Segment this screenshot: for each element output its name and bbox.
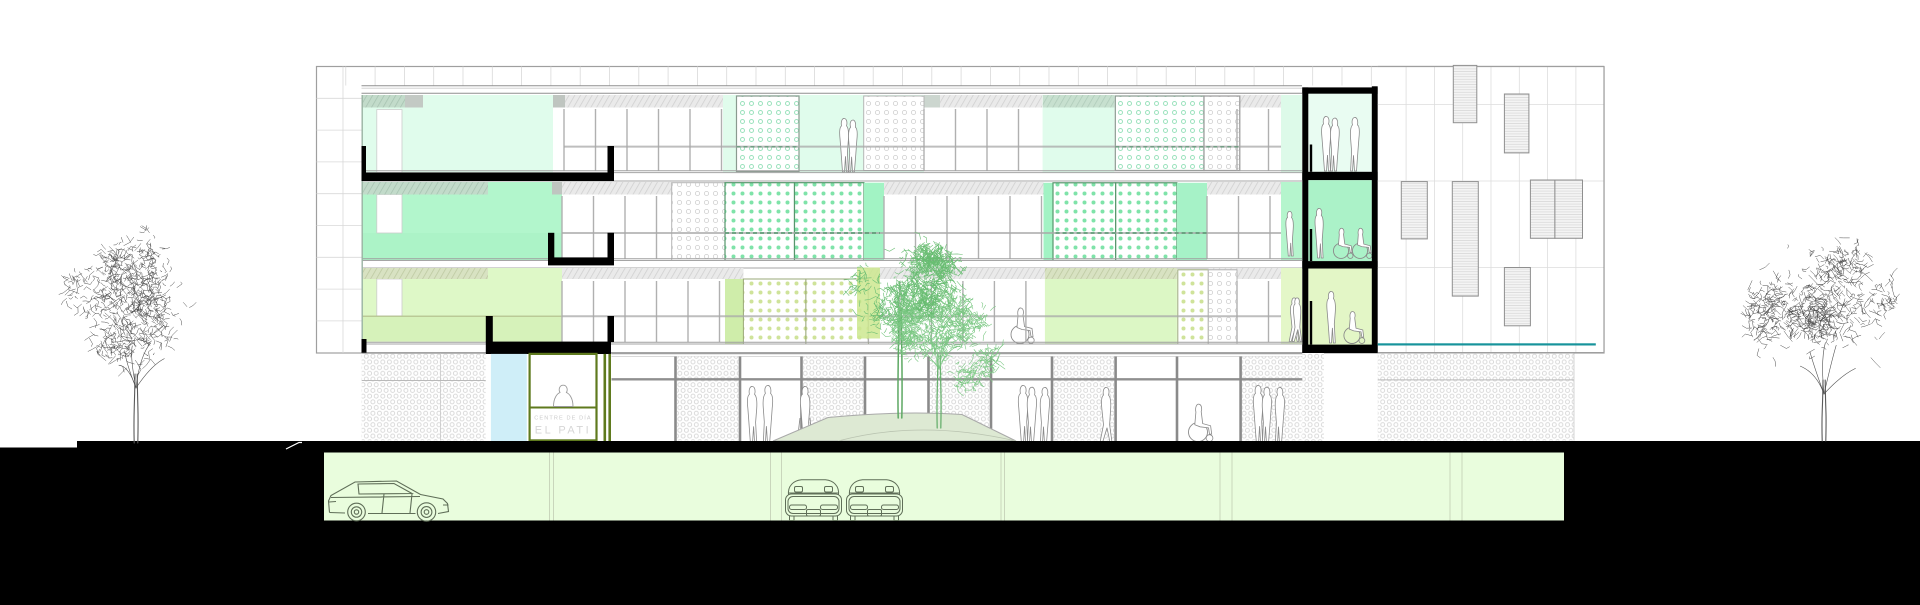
svg-text:EL PATI: EL PATI: [535, 425, 591, 437]
svg-text:CENTRE DE DÍA: CENTRE DE DÍA: [534, 415, 592, 422]
